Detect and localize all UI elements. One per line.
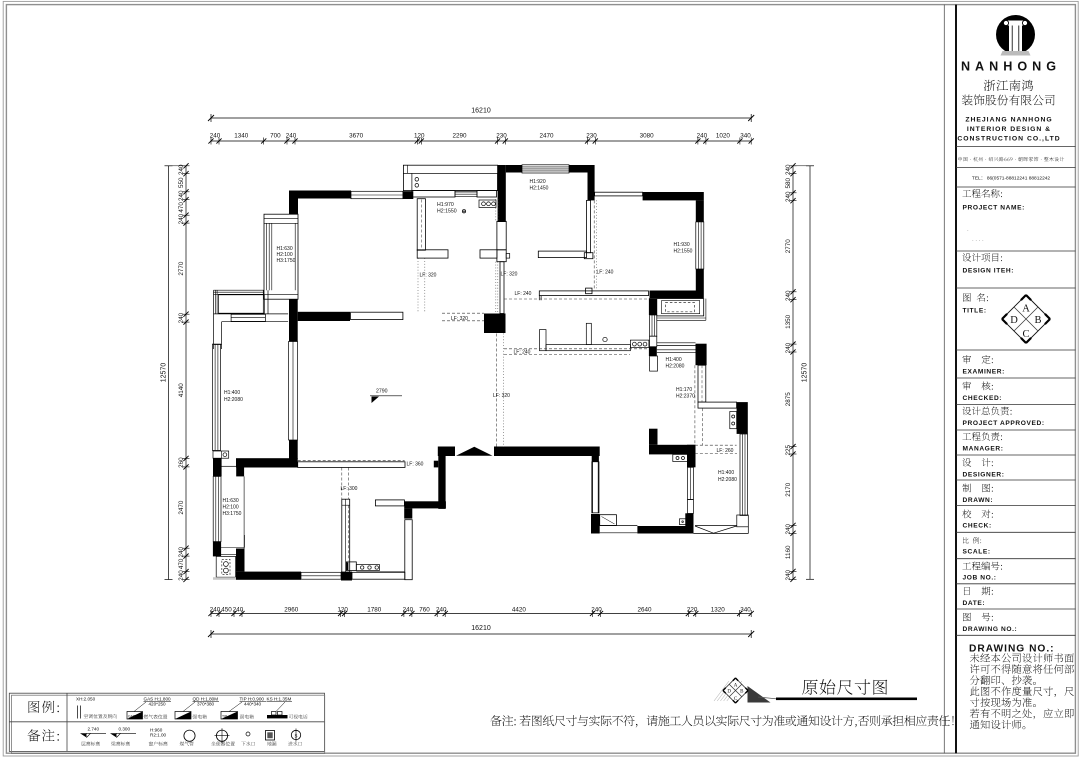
svg-text:240: 240 bbox=[178, 546, 185, 557]
svg-text:340: 340 bbox=[740, 133, 751, 140]
svg-text:2790: 2790 bbox=[376, 389, 388, 395]
svg-text:LF: 240: LF: 240 bbox=[515, 291, 532, 297]
svg-text:MANAGER:: MANAGER: bbox=[963, 446, 1004, 453]
svg-text:470: 470 bbox=[178, 202, 185, 213]
svg-text:H2:2080: H2:2080 bbox=[718, 477, 737, 483]
svg-text:LF: 360: LF: 360 bbox=[407, 462, 424, 468]
svg-text:H2:2080: H2:2080 bbox=[666, 364, 685, 370]
svg-text:2770: 2770 bbox=[178, 261, 185, 276]
svg-text:PROJECT APPROVED:: PROJECT APPROVED: bbox=[963, 420, 1045, 427]
svg-text:LF: 320: LF: 320 bbox=[493, 393, 510, 399]
svg-text:2.740: 2.740 bbox=[88, 727, 100, 732]
svg-text:240: 240 bbox=[210, 133, 221, 140]
svg-text:2290: 2290 bbox=[452, 133, 467, 140]
svg-text:H2:2080: H2:2080 bbox=[224, 397, 243, 403]
svg-text:1350: 1350 bbox=[785, 314, 792, 329]
svg-text:4140: 4140 bbox=[178, 383, 185, 398]
svg-text:D: D bbox=[727, 689, 731, 694]
svg-text:H1:970: H1:970 bbox=[437, 202, 454, 208]
svg-text:H2:2370: H2:2370 bbox=[676, 394, 695, 400]
svg-text:DRAWING NO.:: DRAWING NO.: bbox=[969, 644, 1055, 655]
svg-text:DESIGN ITEH:: DESIGN ITEH: bbox=[963, 268, 1015, 275]
svg-text:XH:2.050: XH:2.050 bbox=[76, 697, 96, 702]
svg-text:TITLE:: TITLE: bbox=[963, 308, 987, 315]
svg-text:4420: 4420 bbox=[512, 607, 527, 614]
svg-text:3670: 3670 bbox=[349, 133, 364, 140]
svg-text:H1:930: H1:930 bbox=[674, 242, 690, 248]
svg-text:120: 120 bbox=[337, 607, 348, 614]
svg-text:550: 550 bbox=[178, 177, 185, 188]
svg-text:3080: 3080 bbox=[640, 133, 655, 140]
svg-text:PROJECT NAME:: PROJECT NAME: bbox=[963, 205, 1025, 212]
svg-text:DRAWN:: DRAWN: bbox=[963, 497, 994, 504]
svg-text:DRAWING NO.:: DRAWING NO.: bbox=[963, 626, 1018, 633]
svg-text:440*340: 440*340 bbox=[244, 702, 262, 707]
svg-text:2170: 2170 bbox=[785, 482, 792, 497]
svg-text:470: 470 bbox=[178, 558, 185, 569]
svg-text:H2:1550: H2:1550 bbox=[437, 209, 457, 215]
svg-text:225: 225 bbox=[785, 445, 792, 456]
svg-text:C: C bbox=[1022, 329, 1029, 340]
svg-text:KS H:1.35M: KS H:1.35M bbox=[267, 697, 292, 702]
svg-text:A: A bbox=[734, 684, 738, 689]
svg-text:16210: 16210 bbox=[471, 625, 491, 632]
svg-text:240: 240 bbox=[697, 133, 708, 140]
svg-text:LF: 320: LF: 320 bbox=[420, 273, 437, 279]
svg-text:H3:1750: H3:1750 bbox=[223, 511, 242, 517]
svg-text:1340: 1340 bbox=[234, 133, 249, 140]
svg-text:DESIGNER:: DESIGNER: bbox=[963, 472, 1005, 479]
svg-text:D: D bbox=[1010, 315, 1018, 326]
svg-text:1020: 1020 bbox=[716, 133, 731, 140]
svg-text:240: 240 bbox=[233, 607, 244, 614]
svg-text:240: 240 bbox=[178, 570, 185, 581]
svg-text:120: 120 bbox=[414, 133, 425, 140]
svg-text:1780: 1780 bbox=[367, 607, 382, 614]
svg-text:H1:400: H1:400 bbox=[224, 390, 240, 396]
svg-text:220: 220 bbox=[687, 607, 698, 614]
svg-text:H2:100: H2:100 bbox=[223, 505, 239, 511]
svg-text:240: 240 bbox=[591, 607, 602, 614]
svg-text:LF: 240: LF: 240 bbox=[597, 270, 614, 276]
svg-text:H1:630: H1:630 bbox=[223, 498, 239, 504]
svg-text:B: B bbox=[1034, 315, 1041, 326]
svg-text:CHECK:: CHECK: bbox=[963, 523, 992, 530]
svg-text:EXAMINER:: EXAMINER: bbox=[963, 369, 1005, 376]
svg-text:2770: 2770 bbox=[785, 239, 792, 254]
svg-text:H1:170: H1:170 bbox=[676, 387, 692, 393]
svg-text:CONSTRUCTION CO.,LTD: CONSTRUCTION CO.,LTD bbox=[957, 136, 1060, 143]
svg-text:LF: 320: LF: 320 bbox=[451, 316, 468, 322]
svg-text:2960: 2960 bbox=[284, 607, 299, 614]
svg-text:2470: 2470 bbox=[178, 500, 185, 515]
svg-text:2470: 2470 bbox=[539, 133, 554, 140]
svg-text:240: 240 bbox=[178, 213, 185, 224]
svg-text:240: 240 bbox=[785, 570, 792, 581]
svg-text:H1:920: H1:920 bbox=[530, 179, 546, 185]
svg-text:240: 240 bbox=[403, 607, 414, 614]
svg-text:230: 230 bbox=[586, 133, 597, 140]
svg-text:700: 700 bbox=[270, 133, 281, 140]
svg-text:TEL： 86(0571-88812241 888122: TEL： 86(0571-88812241 88812242 bbox=[972, 176, 1050, 182]
svg-text:LF: 240: LF: 240 bbox=[514, 350, 531, 356]
svg-text:240: 240 bbox=[436, 607, 447, 614]
svg-text:760: 760 bbox=[419, 607, 430, 614]
svg-text:H1:400: H1:400 bbox=[718, 470, 734, 476]
svg-text:DATE:: DATE: bbox=[963, 600, 986, 607]
svg-text:240: 240 bbox=[785, 191, 792, 202]
svg-text:240: 240 bbox=[210, 607, 221, 614]
svg-text:LF: 260: LF: 260 bbox=[717, 448, 734, 454]
svg-text:1160: 1160 bbox=[785, 545, 792, 559]
svg-text:240: 240 bbox=[785, 342, 792, 353]
svg-text:340: 340 bbox=[740, 607, 751, 614]
svg-text:1320: 1320 bbox=[711, 607, 726, 614]
svg-text:240: 240 bbox=[178, 312, 185, 323]
svg-text:580: 580 bbox=[785, 177, 792, 188]
svg-text:0.300: 0.300 bbox=[119, 727, 131, 732]
svg-text:. . . .: . . . . bbox=[972, 237, 984, 243]
svg-text:S: S bbox=[294, 733, 297, 739]
svg-text:240: 240 bbox=[785, 164, 792, 175]
svg-text:R2:1.00: R2:1.00 bbox=[150, 733, 167, 738]
svg-text:240: 240 bbox=[286, 133, 297, 140]
svg-text:A: A bbox=[1022, 303, 1030, 314]
svg-text:450: 450 bbox=[221, 607, 232, 614]
svg-text:420*250: 420*250 bbox=[149, 702, 167, 707]
svg-text:GAS: GAS bbox=[128, 715, 136, 719]
svg-text:12570: 12570 bbox=[802, 363, 809, 383]
svg-text:240: 240 bbox=[785, 524, 792, 535]
svg-text:H3:1750: H3:1750 bbox=[277, 258, 296, 264]
svg-text:NANHONG: NANHONG bbox=[961, 60, 1061, 74]
svg-text:CHECKED:: CHECKED: bbox=[963, 395, 1003, 402]
svg-text:240: 240 bbox=[785, 290, 792, 301]
svg-text:LF: 300: LF: 300 bbox=[341, 486, 358, 492]
svg-text:260: 260 bbox=[178, 457, 185, 468]
svg-text:12570: 12570 bbox=[161, 363, 168, 383]
svg-text:370*380: 370*380 bbox=[197, 702, 215, 707]
svg-text:2640: 2640 bbox=[637, 607, 652, 614]
svg-text:H1:400: H1:400 bbox=[666, 357, 682, 363]
svg-text:H2:1550: H2:1550 bbox=[674, 249, 693, 255]
svg-text:240: 240 bbox=[178, 190, 185, 201]
svg-text:LF: 320: LF: 320 bbox=[501, 272, 518, 278]
svg-text:TIP: TIP bbox=[222, 715, 228, 719]
svg-text:2875: 2875 bbox=[785, 392, 792, 407]
svg-text:16210: 16210 bbox=[471, 108, 491, 115]
svg-text:SCALE:: SCALE: bbox=[963, 549, 991, 556]
svg-text:H2:1450: H2:1450 bbox=[530, 186, 549, 192]
svg-text:ZHEJIANG NANHONG: ZHEJIANG NANHONG bbox=[965, 117, 1052, 124]
svg-text:JOB NO.:: JOB NO.: bbox=[963, 575, 997, 582]
svg-text:230: 230 bbox=[496, 133, 507, 140]
svg-text:INTERIOR DESIGN &: INTERIOR DESIGN & bbox=[967, 126, 1051, 133]
